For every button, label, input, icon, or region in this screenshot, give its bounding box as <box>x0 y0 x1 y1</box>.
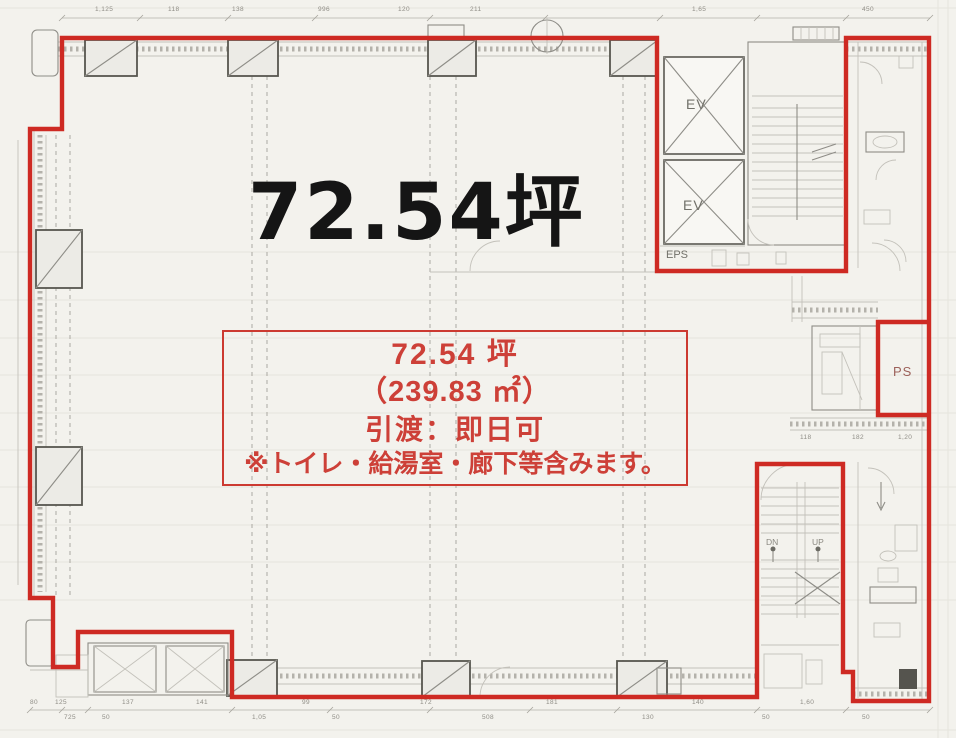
dimension-label: 50 <box>332 714 340 721</box>
stairwell-top <box>748 42 845 245</box>
dimension-label: 211 <box>470 6 482 13</box>
info-note: ※トイレ・給湯室・廊下等含みます。 <box>244 448 666 481</box>
dimension-label: 1,125 <box>95 6 113 13</box>
dimension-label: 1,20 <box>898 434 912 441</box>
dimension-label: 50 <box>862 714 870 721</box>
dimension-label: 450 <box>862 6 874 13</box>
dimension-label: 172 <box>420 699 432 706</box>
elevator-bottom-label: EV <box>683 197 704 213</box>
elevator-top-label: EV <box>686 96 707 112</box>
dimension-label: 725 <box>64 714 76 721</box>
dimension-label: 1,65 <box>692 6 706 13</box>
elevator-shafts <box>660 57 745 266</box>
dimension-label: 130 <box>642 714 654 721</box>
area-title: 72.54坪 <box>248 150 585 262</box>
dimension-label: 996 <box>318 6 330 13</box>
stair-down-label: DN <box>766 537 778 547</box>
dimension-label: 50 <box>762 714 770 721</box>
dimension-label: 182 <box>852 434 864 441</box>
dimension-label: 141 <box>196 699 208 706</box>
service-zone <box>790 276 929 430</box>
dimension-label: 99 <box>302 699 310 706</box>
eps-label: EPS <box>666 249 688 261</box>
dimension-label: 138 <box>232 6 244 13</box>
info-handover: 引渡：即日可 <box>365 412 545 448</box>
dimension-label: 118 <box>168 6 180 13</box>
dimension-label: 181 <box>546 699 558 706</box>
dimension-label: 50 <box>102 714 110 721</box>
dimension-label: 1,60 <box>800 699 814 706</box>
ps-label: PS <box>893 364 912 379</box>
stair-up-label: UP <box>812 537 824 547</box>
dimension-label: 80 <box>30 699 38 706</box>
info-box: 72.54 坪 （239.83 ㎡） 引渡：即日可 ※トイレ・給湯室・廊下等含み… <box>222 330 688 486</box>
info-area-tsubo: 72.54 坪 <box>391 335 518 374</box>
toilet-bottom-right <box>858 462 917 698</box>
info-area-sqm: （239.83 ㎡） <box>358 374 552 412</box>
dimension-label: 1,05 <box>252 714 266 721</box>
dimension-label: 120 <box>398 6 410 13</box>
toilet-top-right <box>858 42 913 268</box>
floorplan-canvas: 72.54坪 72.54 坪 （239.83 ㎡） 引渡：即日可 ※トイレ・給湯… <box>0 0 956 738</box>
dimension-label: 125 <box>55 699 67 706</box>
stairwell-bottom <box>761 464 840 688</box>
dimension-label: 118 <box>800 434 812 441</box>
dimension-label: 508 <box>482 714 494 721</box>
dimension-label: 137 <box>122 699 134 706</box>
dimension-label: 140 <box>692 699 704 706</box>
